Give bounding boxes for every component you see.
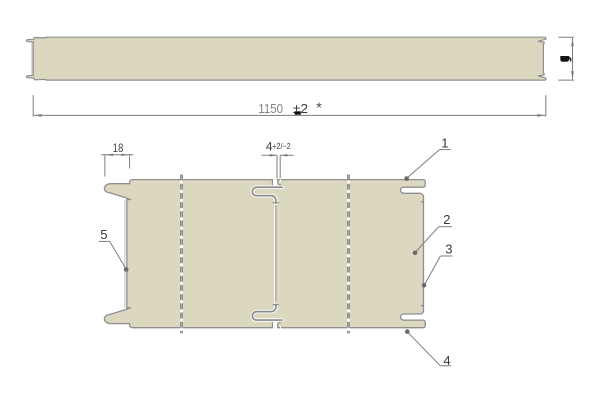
svg-text:3: 3 bbox=[445, 242, 452, 257]
svg-text:5: 5 bbox=[100, 227, 107, 242]
svg-text:1150: 1150 bbox=[258, 101, 283, 116]
svg-text:18: 18 bbox=[113, 141, 124, 155]
svg-text:*: * bbox=[316, 100, 322, 116]
svg-text:2: 2 bbox=[443, 212, 450, 227]
svg-text:4: 4 bbox=[443, 353, 450, 368]
svg-text:1: 1 bbox=[441, 136, 448, 151]
svg-text:+2/−2: +2/−2 bbox=[272, 141, 290, 151]
